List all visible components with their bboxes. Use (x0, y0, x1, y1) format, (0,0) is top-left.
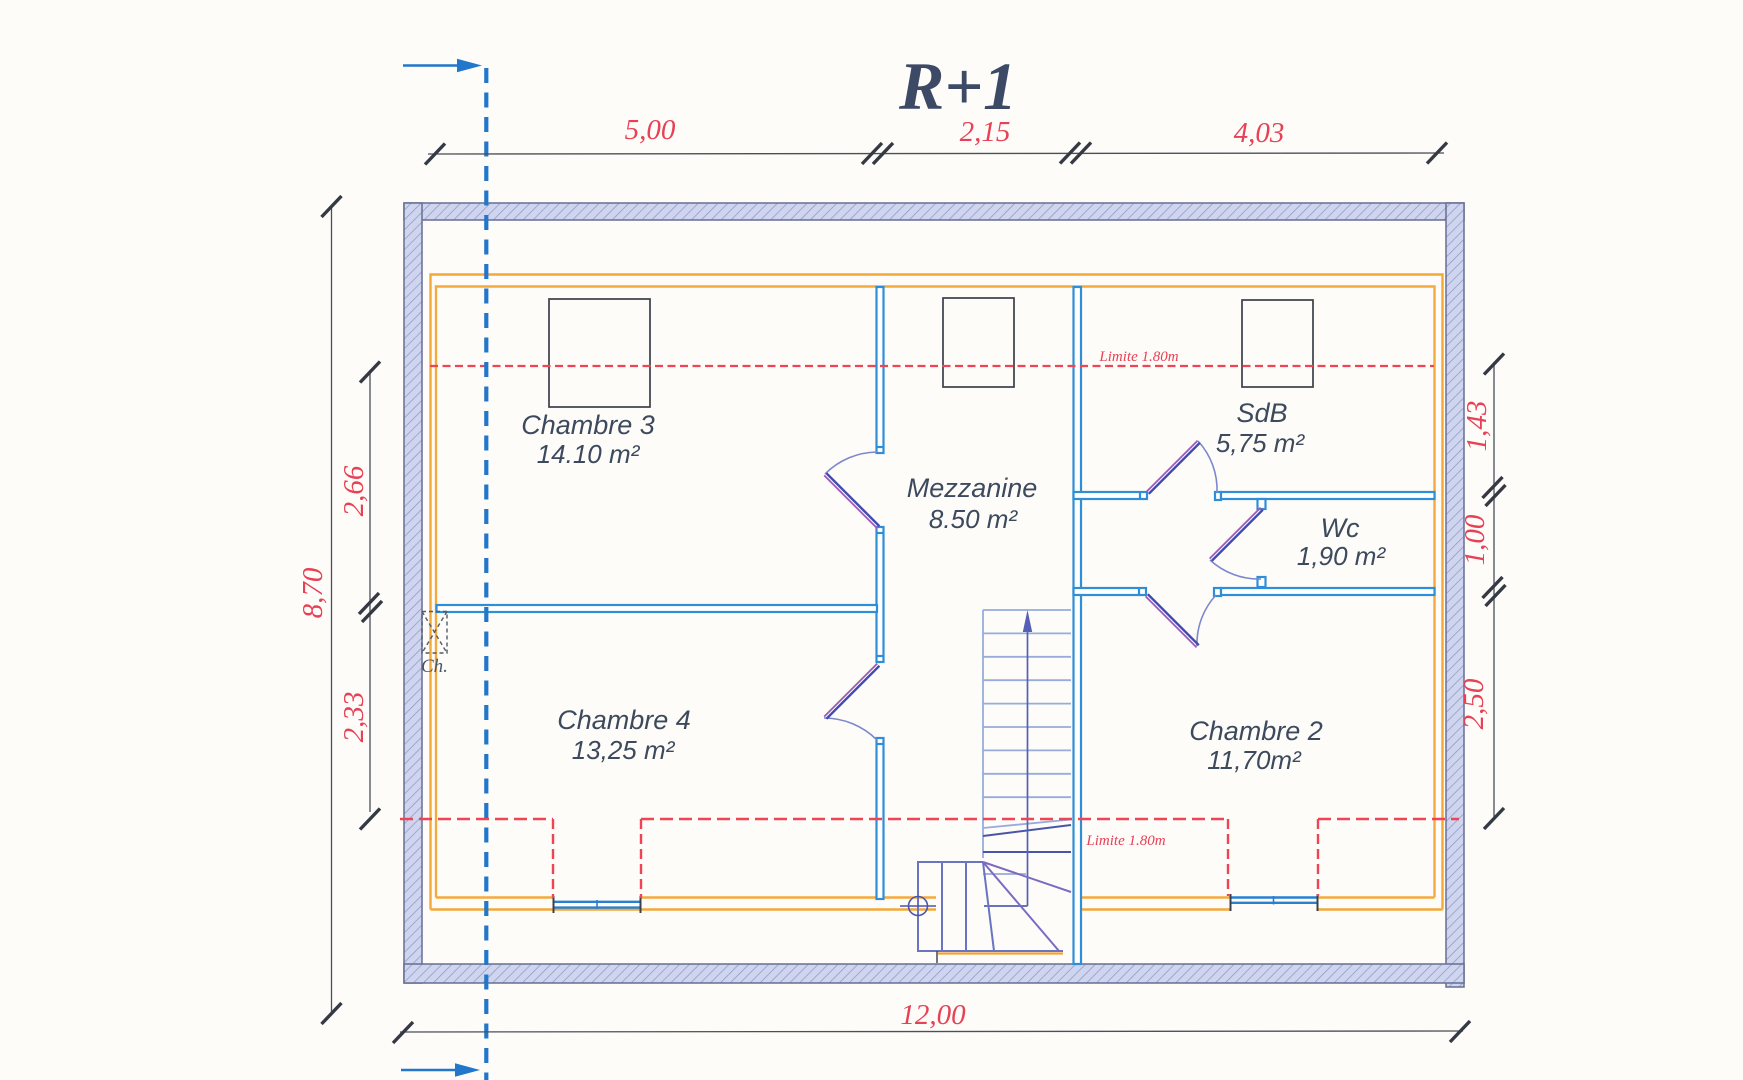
svg-text:11,70m²: 11,70m² (1207, 745, 1302, 775)
svg-text:Limite 1.80m: Limite 1.80m (1098, 349, 1178, 365)
svg-text:Chambre 4: Chambre 4 (557, 705, 691, 735)
svg-text:R+1: R+1 (898, 48, 1017, 124)
svg-text:2,50: 2,50 (1458, 678, 1490, 729)
svg-text:1,90 m²: 1,90 m² (1297, 541, 1386, 571)
svg-text:2,33: 2,33 (338, 692, 370, 743)
svg-text:5,00: 5,00 (625, 114, 676, 146)
svg-text:Chambre 3: Chambre 3 (521, 410, 655, 440)
svg-text:Mezzanine: Mezzanine (907, 473, 1038, 503)
svg-text:4,03: 4,03 (1234, 117, 1285, 149)
svg-text:8.50 m²: 8.50 m² (929, 504, 1018, 534)
svg-text:8,70: 8,70 (297, 567, 329, 618)
svg-text:12,00: 12,00 (900, 999, 966, 1031)
svg-text:5,75 m²: 5,75 m² (1216, 428, 1305, 458)
svg-text:Chambre 2: Chambre 2 (1189, 716, 1323, 746)
svg-text:1,00: 1,00 (1459, 514, 1491, 565)
svg-text:2,66: 2,66 (338, 465, 370, 516)
svg-text:SdB: SdB (1236, 398, 1287, 428)
svg-text:Wc: Wc (1321, 513, 1360, 543)
svg-text:Ch.: Ch. (421, 656, 448, 677)
svg-text:13,25 m²: 13,25 m² (572, 735, 676, 765)
svg-text:14.10 m²: 14.10 m² (537, 439, 641, 469)
svg-text:1,43: 1,43 (1461, 401, 1493, 452)
svg-text:Limite 1.80m: Limite 1.80m (1085, 833, 1165, 849)
